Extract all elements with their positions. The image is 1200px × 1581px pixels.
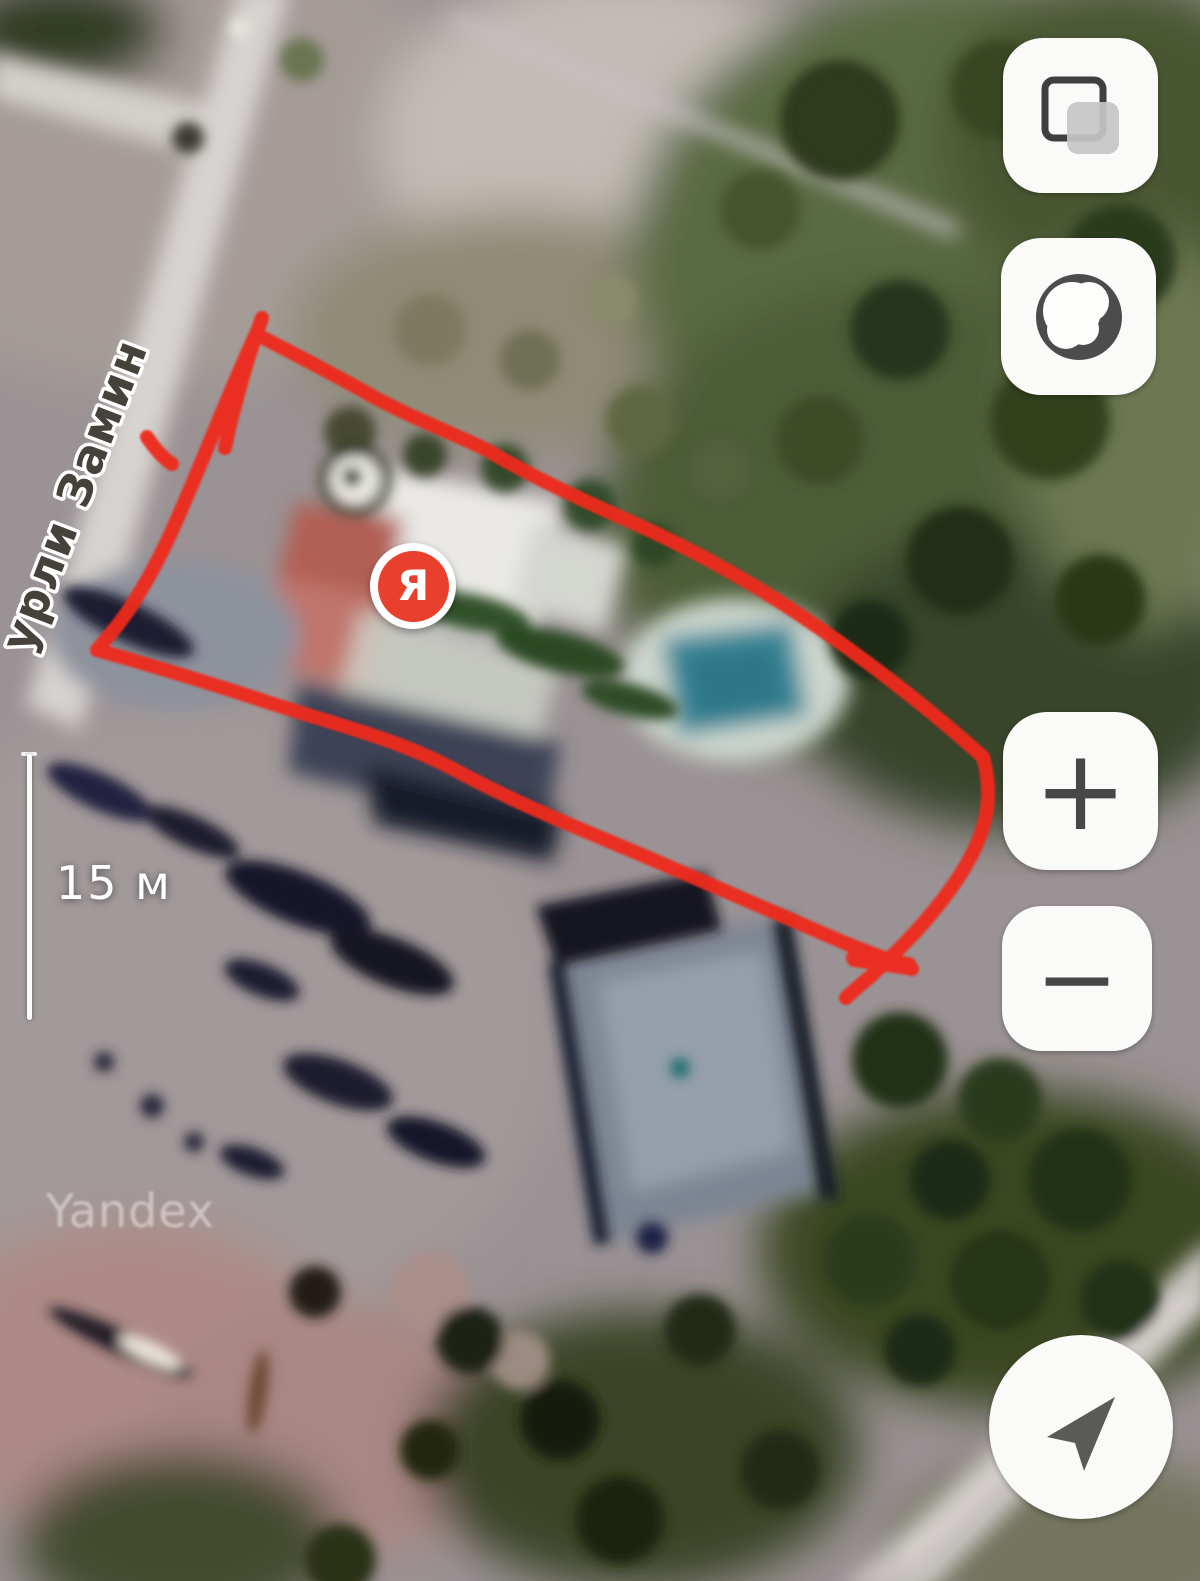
plus-icon: +	[1034, 735, 1128, 847]
navigation-arrow-icon	[1026, 1372, 1136, 1482]
pin-label: Я	[397, 561, 429, 610]
layers-icon	[1031, 66, 1131, 166]
yandex-watermark: Yandex	[46, 1184, 215, 1238]
map-type-button[interactable]	[1001, 238, 1156, 395]
layers-button[interactable]	[1003, 38, 1158, 193]
yandex-maps-satellite-view: урли Замин Я 15 м Yandex	[0, 0, 1200, 1581]
locate-me-button[interactable]	[989, 1335, 1173, 1519]
scale-bar	[27, 754, 32, 1020]
yandex-place-pin[interactable]: Я	[370, 543, 456, 629]
pin-badge: Я	[378, 551, 449, 622]
scale-label: 15 м	[56, 856, 172, 910]
minus-icon: −	[1035, 929, 1119, 1029]
globe-icon	[1027, 265, 1131, 369]
zoom-out-button[interactable]: −	[1002, 906, 1152, 1051]
zoom-in-button[interactable]: +	[1003, 712, 1158, 870]
